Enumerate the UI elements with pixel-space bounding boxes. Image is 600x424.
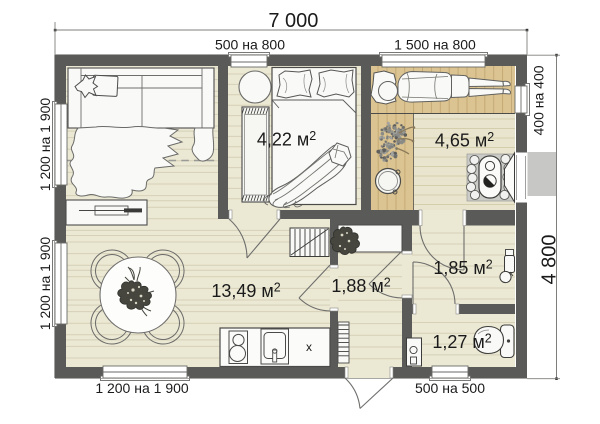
- svg-text:1,27 м2: 1,27 м2: [432, 332, 491, 353]
- svg-text:7 000: 7 000: [268, 10, 318, 32]
- svg-text:500 на 500: 500 на 500: [415, 380, 485, 396]
- svg-text:1,85 м2: 1,85 м2: [433, 258, 492, 279]
- svg-text:1 500 на 800: 1 500 на 800: [394, 37, 476, 53]
- svg-text:4,22 м2: 4,22 м2: [257, 129, 316, 150]
- svg-text:500 на 800: 500 на 800: [215, 37, 285, 53]
- svg-text:4,65 м2: 4,65 м2: [435, 130, 494, 151]
- svg-text:1 200 на 1 900: 1 200 на 1 900: [95, 380, 189, 396]
- svg-text:4 800: 4 800: [539, 234, 561, 284]
- svg-text:400 на 400: 400 на 400: [531, 65, 547, 135]
- svg-text:1,88 м2: 1,88 м2: [331, 276, 390, 297]
- svg-text:13,49 м2: 13,49 м2: [211, 281, 280, 302]
- svg-text:x: x: [306, 340, 312, 354]
- svg-text:1 200 на 1 900: 1 200 на 1 900: [37, 98, 53, 192]
- svg-text:1 200 на 1 900: 1 200 на 1 900: [37, 237, 53, 331]
